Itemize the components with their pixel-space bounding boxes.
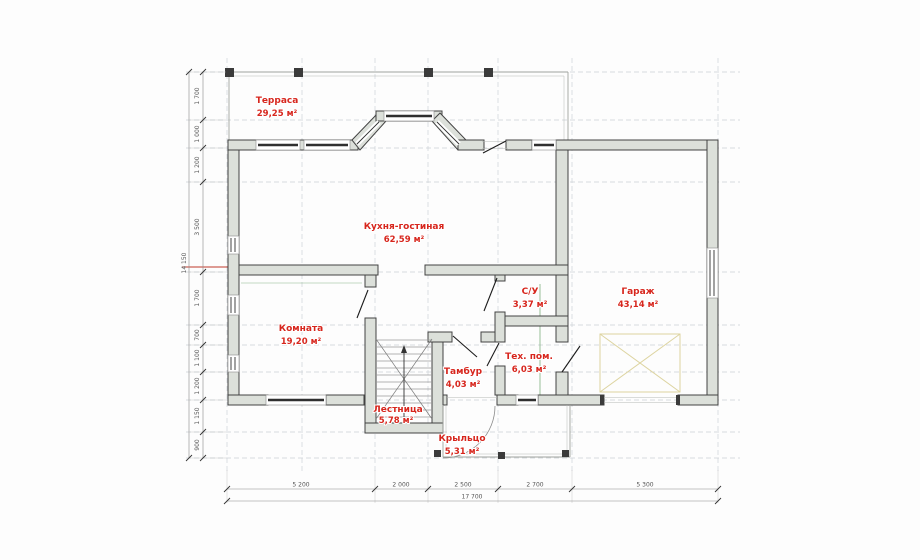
wall-bedroom-right-upper	[365, 275, 376, 287]
dimension-chain-left: 1 700 1 000 1 200 3 500 1 700 700 1 100 …	[181, 69, 226, 461]
room-label-stairs-area: 5,78 м²	[379, 416, 414, 426]
wall-bottom-5	[678, 395, 718, 405]
window-left	[228, 236, 239, 254]
wall-garage-divider-upper	[556, 150, 568, 342]
door-bedroom	[357, 290, 368, 318]
window-left	[228, 355, 239, 372]
wall-top-garage	[556, 140, 718, 150]
room-label-bathroom-area: 3,37 м²	[513, 300, 548, 310]
dim-bottom-3: 2 700	[526, 482, 543, 489]
dim-bottom-1: 2 000	[392, 482, 409, 489]
room-label-garage-name: Гараж	[621, 287, 654, 297]
wall-tambour-top-b	[481, 332, 495, 342]
room-label-bedroom-name: Комната	[279, 324, 323, 334]
room-label-bedroom-area: 19,20 м²	[281, 337, 322, 347]
dim-left-2: 1 200	[194, 156, 201, 173]
terrace-column	[484, 68, 493, 77]
door-kitchen-entry	[483, 141, 506, 153]
room-label-garage-area: 43,14 м²	[618, 300, 659, 310]
door-tech-room	[487, 343, 499, 366]
wall-bottom-4	[538, 395, 604, 405]
door-to-garage	[562, 346, 580, 372]
garage-opening-stub	[600, 395, 604, 405]
dim-left-3: 3 500	[194, 218, 201, 235]
room-label-tech-name: Тех. пом.	[505, 352, 553, 362]
dim-bottom-4: 5 300	[636, 482, 653, 489]
window-garage	[707, 248, 718, 298]
wall-bottom-1	[228, 395, 268, 405]
wall-top-right-b	[506, 140, 532, 150]
wall-tech-left-upper	[495, 312, 505, 342]
wall-bottom-2	[326, 395, 364, 405]
room-label-stairs-name: Лестница	[373, 405, 422, 415]
door-tambour	[453, 336, 477, 357]
window-left	[228, 295, 239, 315]
room-label-terrace-area: 29,25 м²	[257, 109, 298, 119]
room-label-terrace-name: Терраса	[256, 96, 299, 106]
wall-top-right-a	[458, 140, 484, 150]
dim-left-4: 1 700	[194, 289, 201, 306]
wall-bathroom-bottom	[495, 316, 568, 326]
stair-arrow-head	[401, 345, 407, 353]
room-label-tech-area: 6,03 м²	[512, 365, 547, 375]
floor-plan-drawing: Терраса 29,25 м² Кухня-гостиная 62,59 м²…	[0, 0, 920, 560]
dim-bottom-2: 2 500	[454, 482, 471, 489]
dim-left-0: 1 700	[194, 87, 201, 104]
wall-stair-right	[432, 332, 443, 433]
windows	[228, 111, 718, 405]
room-label-porch-name: Крыльцо	[438, 434, 485, 444]
wall-tambour-top-a	[428, 332, 452, 342]
wall-kitchen-room-b	[425, 265, 568, 275]
wall-bottom-jamb	[443, 395, 447, 405]
porch-column	[434, 450, 441, 457]
dim-left-1: 1 000	[194, 125, 201, 142]
wall-bottom-3	[497, 395, 518, 405]
room-label-kitchen-area: 62,59 м²	[384, 235, 425, 245]
dim-left-total: 14 150	[181, 252, 188, 273]
dim-left-5: 700	[194, 329, 201, 341]
room-label-kitchen-name: Кухня-гостиная	[364, 222, 445, 232]
room-label-porch-area: 5,31 м²	[445, 447, 480, 457]
terrace-column	[424, 68, 433, 77]
dim-left-9: 900	[194, 439, 201, 451]
room-label-tambour-name: Тамбур	[444, 366, 483, 377]
porch-column	[498, 452, 505, 459]
dim-bottom-total: 17 700	[462, 494, 483, 501]
terrace-column	[225, 68, 234, 77]
wall-garage-divider-lower	[556, 372, 568, 395]
garage-door-marking	[600, 334, 680, 392]
dim-bottom-0: 5 200	[292, 482, 309, 489]
dim-left-7: 1 200	[194, 377, 201, 394]
dim-left-8: 1 150	[194, 407, 201, 424]
floor-plan-page: Терраса 29,25 м² Кухня-гостиная 62,59 м²…	[0, 0, 920, 560]
wall-kitchen-room-a	[239, 265, 378, 275]
wall-bedroom-right-lower	[365, 318, 376, 433]
room-label-bathroom-name: С/У	[522, 287, 539, 297]
dimension-chain-bottom: 5 200 2 000 2 500 2 700 5 300 17 700	[224, 470, 721, 504]
porch-column	[562, 450, 569, 457]
terrace-column	[294, 68, 303, 77]
door-bathroom	[484, 278, 497, 311]
dim-left-6: 1 100	[194, 349, 201, 366]
garage-opening-stub	[676, 395, 680, 405]
room-label-tambour-area: 4,03 м²	[446, 380, 481, 390]
wall-tech-left-lower	[495, 366, 505, 395]
